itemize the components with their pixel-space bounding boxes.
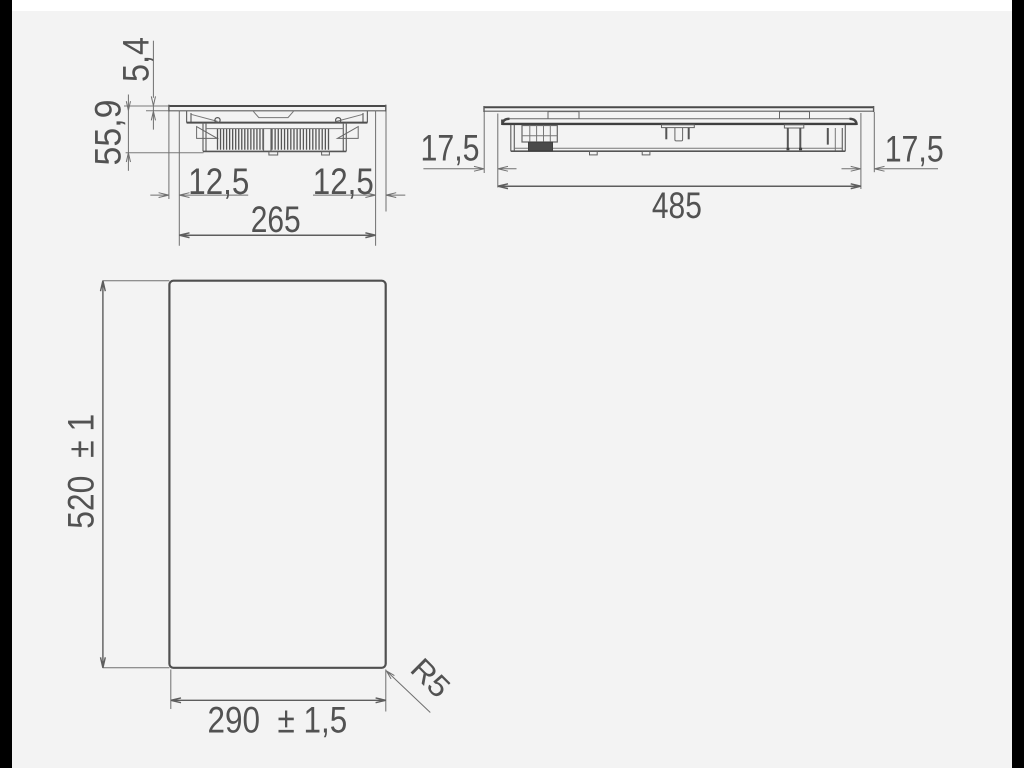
svg-text:55,9: 55,9 — [88, 100, 129, 166]
svg-text:17,5: 17,5 — [421, 128, 480, 169]
svg-text:12,5: 12,5 — [188, 161, 249, 202]
svg-text:17,5: 17,5 — [885, 129, 944, 170]
svg-text:5,4: 5,4 — [116, 37, 157, 82]
svg-text:520 ± 1: 520 ± 1 — [61, 414, 102, 529]
svg-text:485: 485 — [652, 185, 702, 226]
svg-text:265: 265 — [251, 199, 301, 240]
svg-text:12,5: 12,5 — [313, 161, 374, 202]
svg-text:290 ± 1,5: 290 ± 1,5 — [208, 699, 348, 740]
